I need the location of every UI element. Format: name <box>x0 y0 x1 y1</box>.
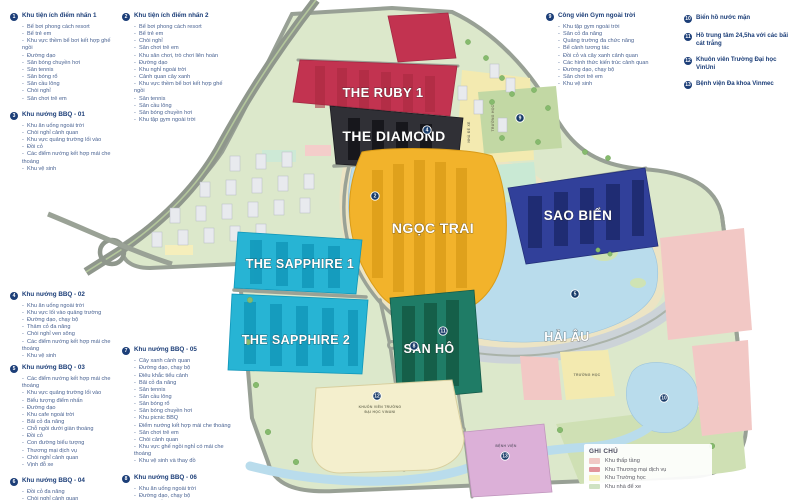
section-6-badge: 6 <box>10 478 18 486</box>
zone-label-the-sapphire-2: THE SAPPHIRE 2 <box>242 333 350 347</box>
lake-islet <box>630 278 646 288</box>
map-key-title: GHI CHÚ <box>589 448 707 455</box>
legend-section-5: 5Khu nướng BBQ - 03 Các điểm nướng kết h… <box>10 364 116 469</box>
svg-text:12: 12 <box>374 394 380 400</box>
legend-item: Các điểm nướng kết hợp mái che thoáng <box>22 151 116 165</box>
zone-label-sao-bien: SAO BIỂN <box>544 208 612 223</box>
legend-item: Khu cafe ngoài trời <box>22 412 116 419</box>
map-key: GHI CHÚ Khu thấp tầng Khu Thương mại dịc… <box>584 444 712 496</box>
map-marker-8: 8 <box>410 342 418 350</box>
legend-item: Chòi nghỉ <box>22 88 116 95</box>
swatch-school <box>589 475 600 481</box>
legend-item: Đường dạo, chạy bộ <box>558 67 664 74</box>
legend-item: Khu tập gym ngoài trời <box>134 117 234 124</box>
legend-right-item-11: 11Hồ trung tâm 24,5ha với các bãi cát tr… <box>684 32 796 47</box>
zone-label-hai-au: HẢI ÂU <box>544 329 589 344</box>
legend-column-2: 2Khu tiện ích điểm nhấn 2 Bể bơi phong c… <box>122 12 234 500</box>
badge-11: 11 <box>684 33 692 41</box>
section-2-badge: 2 <box>122 13 130 21</box>
section-4-title: Khu nướng BBQ - 02 <box>22 291 85 299</box>
legend-item: Sân bóng chuyền hơi <box>134 110 234 117</box>
legend-item: Điêu khắc tiểu cảnh <box>134 373 234 380</box>
legend-item: Khu vệ sinh <box>558 81 664 88</box>
masterplan-map: THE RUBY 1 THE DIAMOND NGỌC TRAI SAO BIỂ… <box>0 0 800 500</box>
map-marker-11: 11 <box>439 327 447 335</box>
map-key-row: Khu Thương mại dịch vụ <box>589 467 707 473</box>
legend-item: Bể cảnh tương tác <box>558 45 664 52</box>
map-marker-9: 9 <box>516 114 524 122</box>
legend-section-3: 3Khu nướng BBQ - 01 Khu ăn uống ngoài tr… <box>10 111 116 173</box>
map-marker-5: 5 <box>571 290 579 298</box>
legend-item: Thương mại dịch vụ <box>22 448 116 455</box>
section-2-title: Khu tiện ích điểm nhấn 2 <box>134 12 209 20</box>
zone-label-the-sapphire-1: THE SAPPHIRE 1 <box>246 257 354 271</box>
swatch-commercial <box>589 467 600 473</box>
legend-item: Sân bóng chuyền hơi <box>22 60 116 67</box>
legend-item: Sân chơi trẻ em <box>134 430 234 437</box>
section-8-badge: 8 <box>122 475 130 483</box>
legend-section-6: 6Khu nướng BBQ - 04 Đồi cỏ đa năng Chòi … <box>10 477 116 500</box>
section-7-title: Khu nướng BBQ - 05 <box>134 346 197 354</box>
legend-item: Các điểm nướng kết hợp mái che thoáng <box>22 339 116 353</box>
legend-item: Bãi cỏ đa năng <box>134 380 234 387</box>
map-marker-10: 10 <box>660 394 668 402</box>
legend-item: Khu vệ sinh <box>22 353 116 360</box>
legend-item: Sân cỏ đa năng <box>558 31 664 38</box>
legend-item: Khu ăn uống ngoài trời <box>22 123 116 130</box>
label-11: Hồ trung tâm 24,5ha với các bãi cát trắn… <box>696 32 796 47</box>
legend-item: Khu nghỉ ngoài trời <box>134 67 234 74</box>
svg-text:4: 4 <box>426 128 429 134</box>
legend-item: Các điểm nướng kết hợp mái che thoáng <box>22 376 116 390</box>
legend-item: Con đường biểu tượng <box>22 440 116 447</box>
legend-item: Chòi nghỉ ven sông <box>22 331 116 338</box>
map-marker-2: 2 <box>371 192 379 200</box>
svg-text:11: 11 <box>440 329 446 335</box>
svg-text:5: 5 <box>574 292 577 298</box>
legend-section-7: 7Khu nướng BBQ - 05 Cây xanh cảnh quan Đ… <box>122 346 234 465</box>
legend-right-item-10: 10Biển hồ nước mặn <box>684 14 796 23</box>
badge-10: 10 <box>684 15 692 23</box>
legend-section-8: 8Khu nướng BBQ - 06 Khu ăn uống ngoài tr… <box>122 474 234 500</box>
legend-item: Khu vực quảng trường lối vào <box>22 390 116 397</box>
legend-right-item-12: 12Khuôn viên Trường Đại học VinUni <box>684 56 796 71</box>
section-6-title: Khu nướng BBQ - 04 <box>22 477 85 485</box>
masterplan-canvas: THE RUBY 1 THE DIAMOND NGỌC TRAI SAO BIỂ… <box>0 0 800 500</box>
legend-item: Chòi nghỉ cảnh quan <box>22 130 116 137</box>
legend-item: Vịnh đỗ xe <box>22 462 116 469</box>
legend-item: Sân chơi trẻ em <box>134 45 234 52</box>
label-10: Biển hồ nước mặn <box>696 14 750 22</box>
zone-label-the-ruby-1: THE RUBY 1 <box>342 85 423 100</box>
legend-item: Đường dạo, chạy bộ <box>134 365 234 372</box>
legend-item: Khu vực thềm bể bơi kết hợp ghế ngồi <box>134 81 234 95</box>
legend-item: Đường dạo <box>134 60 234 67</box>
legend-item: Đường dạo <box>22 53 116 60</box>
svg-text:10: 10 <box>661 396 667 402</box>
swatch-parking <box>589 484 600 490</box>
section-8-title: Khu nướng BBQ - 06 <box>134 474 197 482</box>
map-key-label: Khu thấp tầng <box>605 458 640 464</box>
legend-item: Khu vực thềm bể bơi kết hợp ghế ngồi <box>22 38 116 52</box>
legend-item: Sân chơi trẻ em <box>558 74 664 81</box>
hospital-label: BỆNH VIỆN <box>495 443 516 448</box>
legend-item: Sân chơi trẻ em <box>22 96 116 103</box>
section-5-title: Khu nướng BBQ - 03 <box>22 364 85 372</box>
parking-label: NHÀ ĐỂ XE <box>466 121 471 143</box>
legend-item: Khu vệ sinh <box>22 166 116 173</box>
legend-item: Đồi cỏ và cây xanh cảnh quan <box>558 53 664 60</box>
badge-13: 13 <box>684 81 692 89</box>
label-13: Bệnh viện Đa khoa Vinmec <box>696 80 774 88</box>
legend-item: Đường dạo, chạy bộ <box>134 493 234 500</box>
section-3-badge: 3 <box>10 112 18 120</box>
legend-right-item-13: 13Bệnh viện Đa khoa Vinmec <box>684 80 796 89</box>
section-4-badge: 4 <box>10 292 18 300</box>
legend-item: Sân bóng rổ <box>22 74 116 81</box>
legend-item: Biểu tượng điểm nhấn <box>22 398 116 405</box>
legend-section-9: 9Công viên Gym ngoài trời Khu tập gym ng… <box>546 12 664 88</box>
legend-item: Điểm nướng kết hợp mái che thoáng <box>134 423 234 430</box>
map-key-row: Khu thấp tầng <box>589 458 707 464</box>
legend-column-1: 1Khu tiện ích điểm nhấn 1 Bể bơi phong c… <box>10 12 116 500</box>
section-3-title: Khu nướng BBQ - 01 <box>22 111 85 119</box>
map-key-label: Khu nhà để xe <box>605 484 641 490</box>
label-12: Khuôn viên Trường Đại học VinUni <box>696 56 796 71</box>
map-marker-13: 13 <box>501 452 509 460</box>
legend-column-right: 10Biển hồ nước mặn 11Hồ trung tâm 24,5ha… <box>684 14 796 98</box>
vinuni-label-line1: KHUÔN VIÊN TRƯỜNG <box>359 404 402 409</box>
section-5-badge: 5 <box>10 365 18 373</box>
legend-item: Khu vệ sinh và thay đồ <box>134 458 234 465</box>
zone-hospital <box>464 424 552 497</box>
legend-item: Sân bóng rổ <box>134 401 234 408</box>
svg-text:8: 8 <box>413 344 416 350</box>
section-1-title: Khu tiện ích điểm nhấn 1 <box>22 12 97 20</box>
map-marker-12: 12 <box>373 392 381 400</box>
legend-section-1: 1Khu tiện ích điểm nhấn 1 Bể bơi phong c… <box>10 12 116 103</box>
section-1-badge: 1 <box>10 13 18 21</box>
svg-text:2: 2 <box>374 194 377 200</box>
legend-item: Khu ăn uống ngoài trời <box>22 303 116 310</box>
map-key-row: Khu nhà để xe <box>589 484 707 490</box>
legend-section-4: 4Khu nướng BBQ - 02 Khu ăn uống ngoài tr… <box>10 291 116 360</box>
legend-item: Khu picnic BBQ <box>134 415 234 422</box>
badge-12: 12 <box>684 57 692 65</box>
legend-section-2: 2Khu tiện ích điểm nhấn 2 Bể bơi phong c… <box>122 12 234 124</box>
legend-item: Sân bóng chuyền hơi <box>134 408 234 415</box>
legend-item: Sân tennis <box>134 96 234 103</box>
map-marker-4: 4 <box>423 126 431 134</box>
legend-item: Khu vực lối vào quảng trường <box>22 310 116 317</box>
zone-vinuni-campus <box>312 380 464 473</box>
legend-item: Chòi nghỉ <box>134 38 234 45</box>
school-label-1: TRƯỜNG HỌC <box>490 104 495 131</box>
legend-item: Khu ăn uống ngoài trời <box>134 486 234 493</box>
legend-item: Sân cầu lông <box>134 103 234 110</box>
legend-item: Khu vực ghế ngồi nghỉ có mái che thoáng <box>134 444 234 458</box>
section-9-badge: 9 <box>546 13 554 21</box>
zone-label-ngoc-trai: NGỌC TRAI <box>392 220 474 236</box>
legend-gym-park: 9Công viên Gym ngoài trời Khu tập gym ng… <box>546 12 664 96</box>
legend-item: Chòi nghỉ cảnh quan <box>22 496 116 500</box>
svg-text:9: 9 <box>519 116 522 122</box>
map-key-label: Khu Trường học <box>605 475 646 481</box>
legend-item: Đường dạo <box>22 405 116 412</box>
section-7-badge: 7 <box>122 347 130 355</box>
legend-item: Sân tennis <box>134 387 234 394</box>
legend-item: Khu sân chơi, trò chơi liên hoàn <box>134 53 234 60</box>
swatch-low-rise <box>589 458 600 464</box>
svg-text:13: 13 <box>502 454 508 460</box>
legend-item: Cây xanh cảnh quan <box>134 358 234 365</box>
legend-item: Các hình thức kiến trúc cảnh quan <box>558 60 664 67</box>
map-key-row: Khu Trường học <box>589 475 707 481</box>
section-9-title: Công viên Gym ngoài trời <box>558 12 635 20</box>
school-label-2: TRƯỜNG HỌC <box>574 372 601 377</box>
vinuni-label-line2: ĐẠI HỌC VINUNI <box>365 410 396 414</box>
map-key-label: Khu Thương mại dịch vụ <box>605 467 666 473</box>
legend-item: Chòi cảnh quan <box>134 437 234 444</box>
legend-item: Chòi nghỉ cảnh quan <box>22 455 116 462</box>
